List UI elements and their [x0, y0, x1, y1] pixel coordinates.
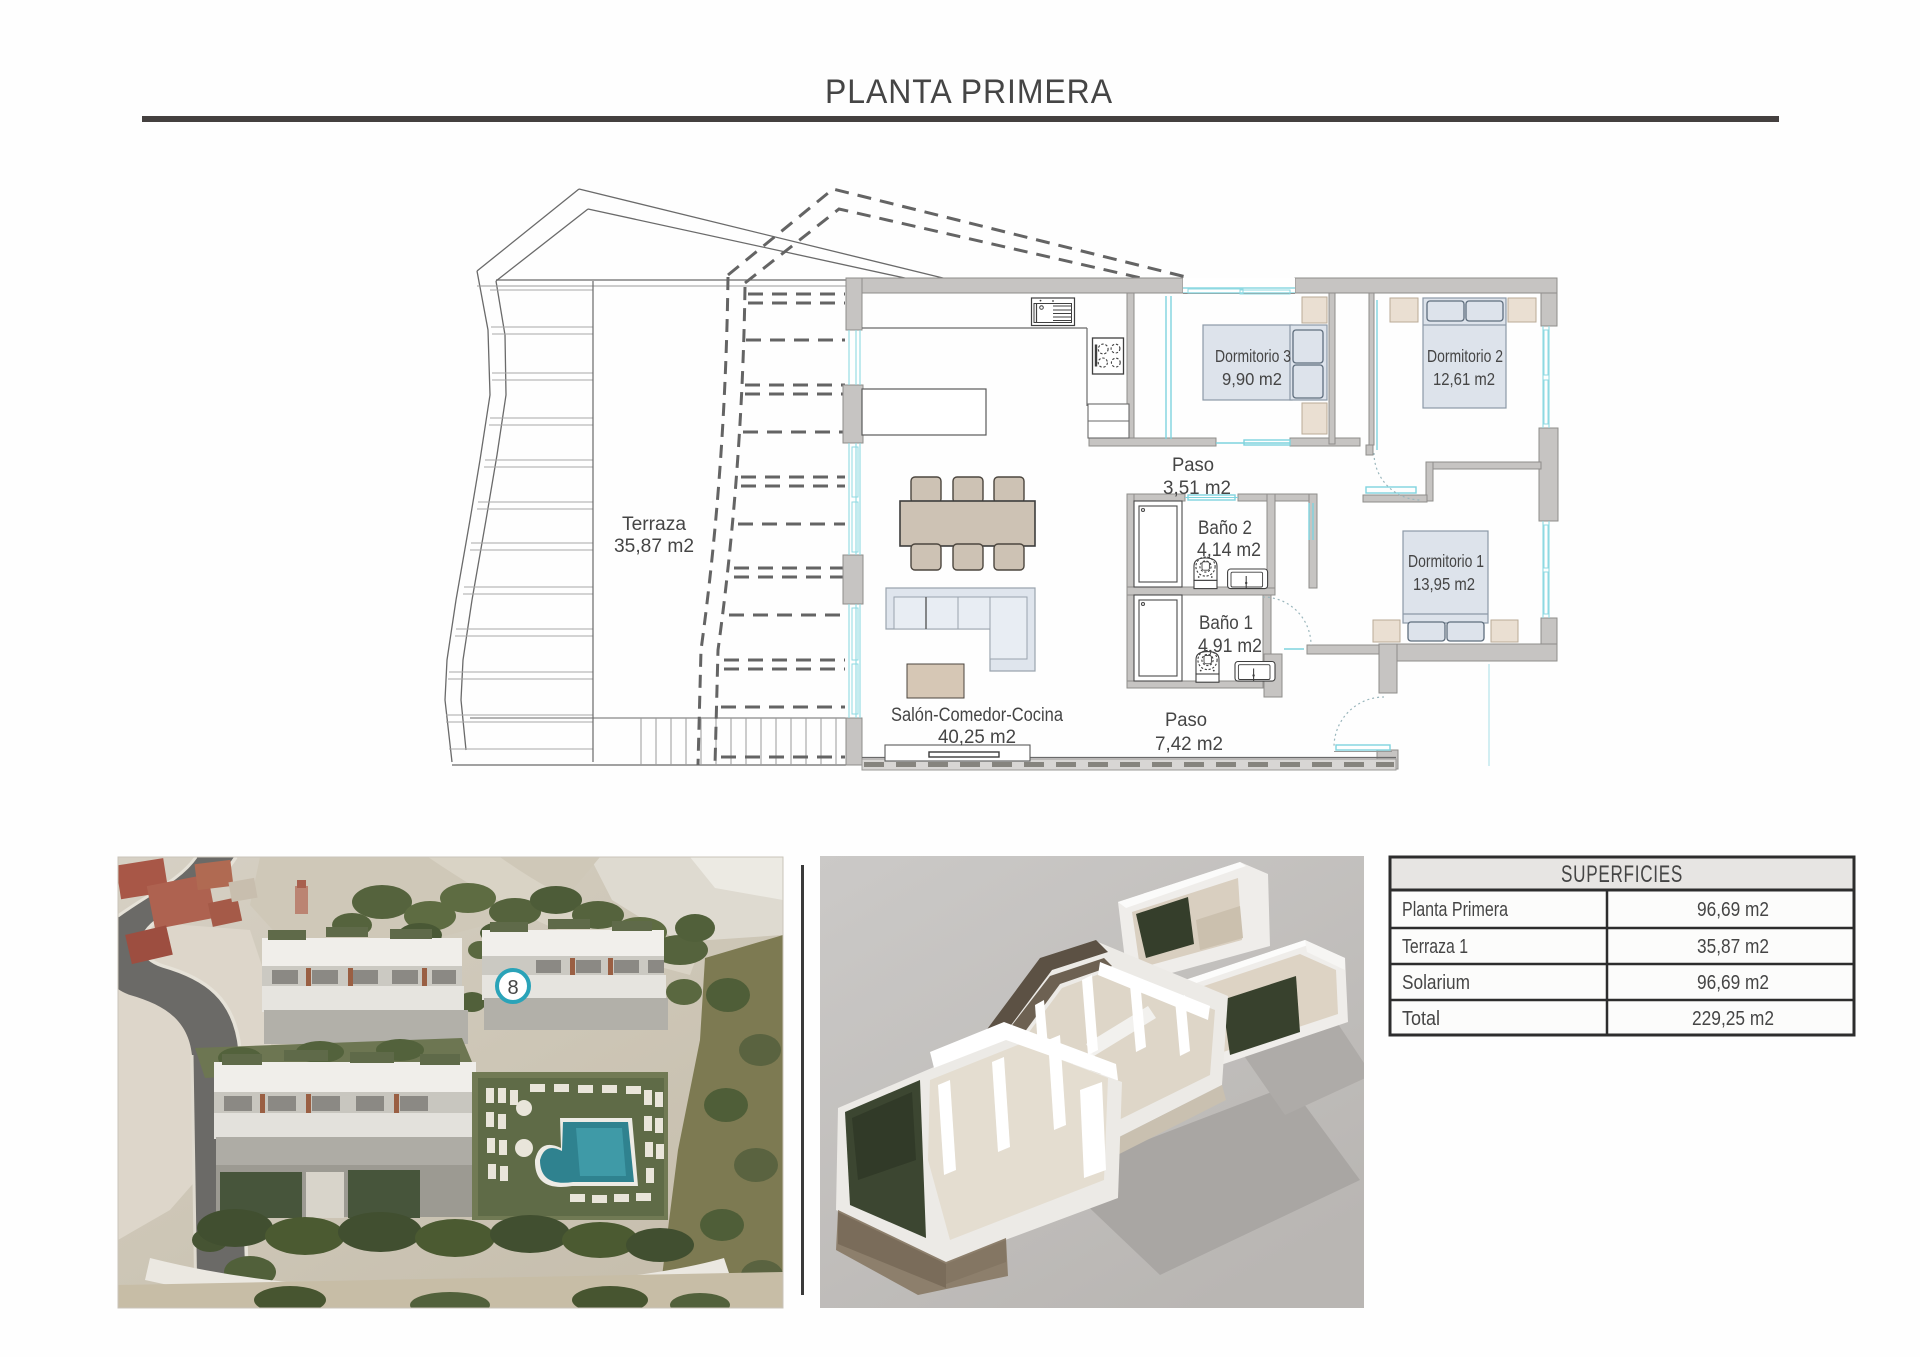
- svg-text:12,61 m2: 12,61 m2: [1433, 369, 1495, 389]
- svg-text:96,69 m2: 96,69 m2: [1697, 899, 1769, 921]
- svg-text:SUPERFICIES: SUPERFICIES: [1561, 861, 1683, 888]
- svg-text:PLANTA PRIMERA: PLANTA PRIMERA: [825, 73, 1113, 111]
- svg-text:Salón-Comedor-Cocina: Salón-Comedor-Cocina: [891, 705, 1063, 726]
- svg-text:Paso: Paso: [1172, 455, 1214, 476]
- svg-text:Baño 1: Baño 1: [1199, 613, 1253, 634]
- svg-text:Baño 2: Baño 2: [1198, 518, 1252, 539]
- svg-text:229,25 m2: 229,25 m2: [1692, 1008, 1774, 1030]
- svg-text:4,14 m2: 4,14 m2: [1197, 540, 1261, 561]
- svg-text:Solarium: Solarium: [1402, 972, 1470, 994]
- svg-text:8: 8: [507, 977, 518, 999]
- svg-text:13,95 m2: 13,95 m2: [1413, 574, 1475, 594]
- svg-text:7,42 m2: 7,42 m2: [1155, 734, 1223, 755]
- svg-text:Dormitorio 1: Dormitorio 1: [1408, 551, 1484, 571]
- svg-text:Terraza: Terraza: [622, 514, 686, 535]
- svg-text:Terraza 1: Terraza 1: [1402, 936, 1468, 958]
- svg-text:4,91 m2: 4,91 m2: [1198, 636, 1262, 657]
- svg-text:Paso: Paso: [1165, 710, 1207, 731]
- svg-text:40,25 m2: 40,25 m2: [938, 727, 1016, 748]
- svg-text:Dormitorio 3: Dormitorio 3: [1215, 346, 1291, 366]
- svg-text:35,87 m2: 35,87 m2: [614, 536, 694, 557]
- svg-text:9,90 m2: 9,90 m2: [1222, 369, 1282, 389]
- svg-text:96,69 m2: 96,69 m2: [1697, 972, 1769, 994]
- svg-text:Dormitorio 2: Dormitorio 2: [1427, 346, 1503, 366]
- svg-text:Total: Total: [1402, 1008, 1440, 1030]
- svg-text:Planta Primera: Planta Primera: [1402, 899, 1509, 921]
- svg-text:35,87 m2: 35,87 m2: [1697, 936, 1769, 958]
- svg-text:3,51 m2: 3,51 m2: [1163, 478, 1231, 499]
